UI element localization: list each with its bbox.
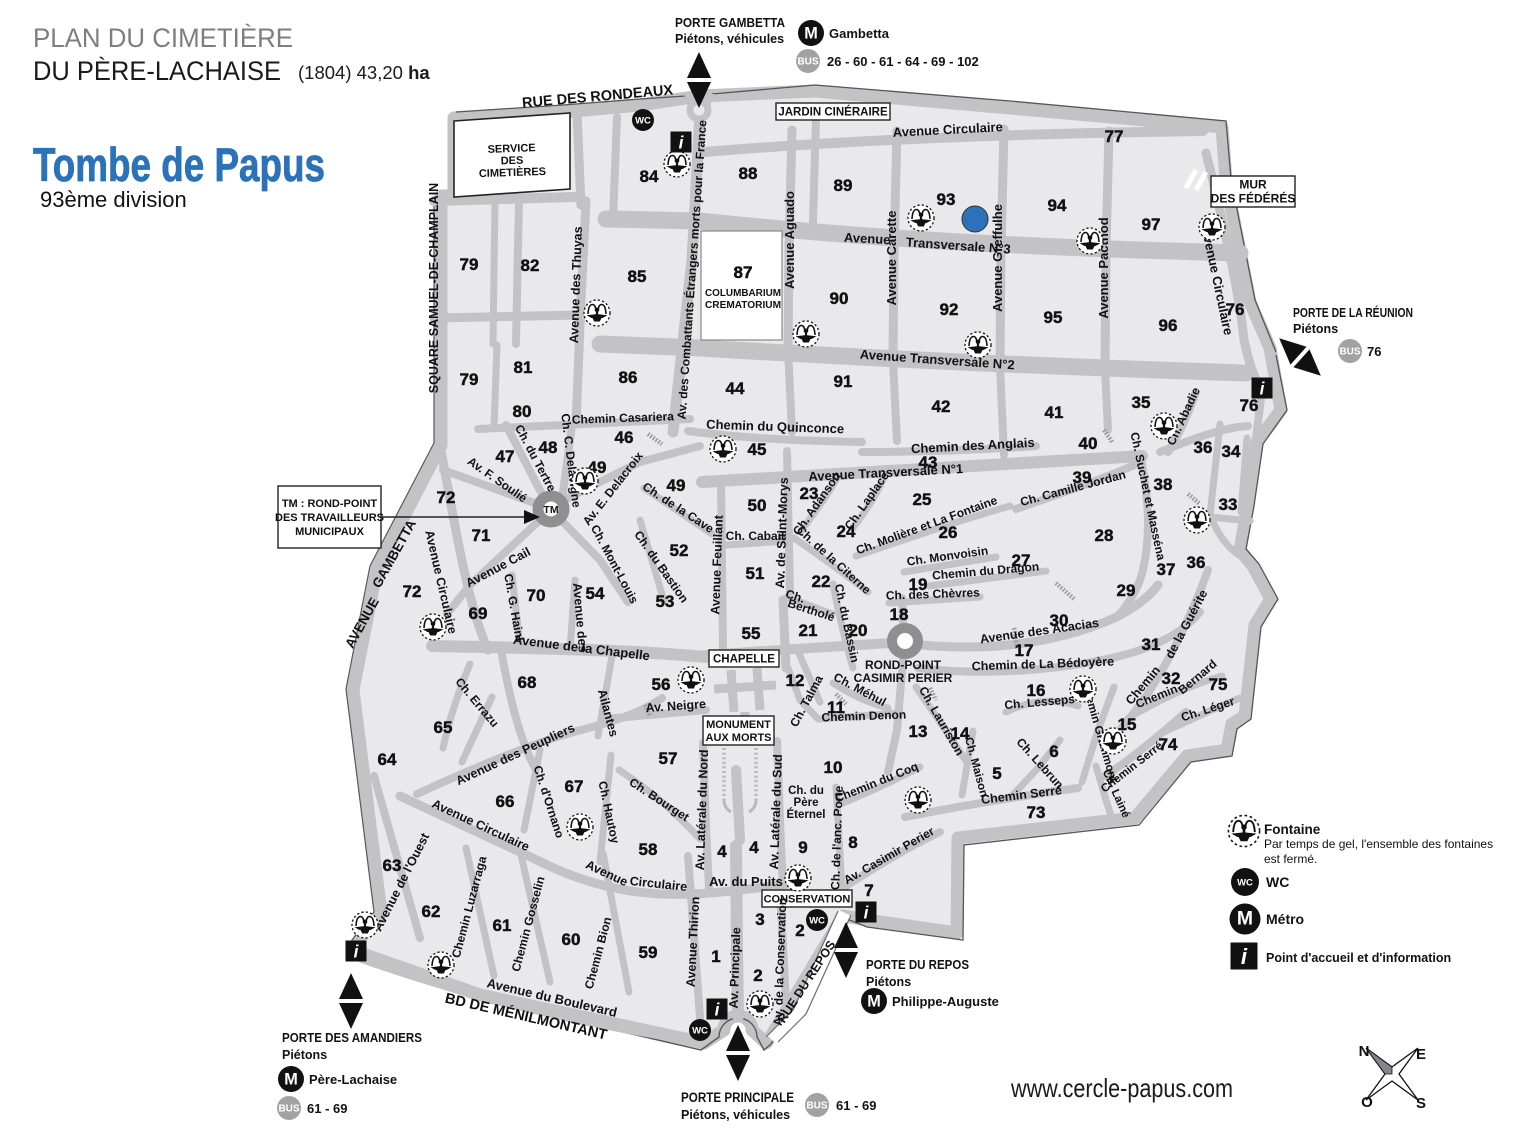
svg-text:76: 76	[1367, 344, 1381, 359]
svg-text:S: S	[1416, 1095, 1426, 1112]
svg-text:WC: WC	[692, 1026, 708, 1037]
svg-text:95: 95	[1044, 308, 1063, 327]
svg-text:51: 51	[746, 564, 765, 583]
svg-text:M: M	[1237, 908, 1253, 930]
svg-text:SERVICE: SERVICE	[487, 142, 535, 156]
svg-text:48: 48	[539, 438, 558, 457]
svg-text:88: 88	[739, 164, 758, 183]
svg-text:92: 92	[940, 300, 959, 319]
svg-text:CIMETIÈRES: CIMETIÈRES	[479, 165, 547, 180]
svg-text:90: 90	[830, 289, 849, 308]
svg-text:94: 94	[1048, 196, 1067, 215]
svg-text:Avenue Greffulhe: Avenue Greffulhe	[990, 204, 1005, 312]
svg-text:59: 59	[639, 943, 658, 962]
svg-text:Par temps de gel, l'ensemble d: Par temps de gel, l'ensemble des fontain…	[1264, 837, 1493, 851]
svg-text:16: 16	[1027, 681, 1046, 700]
svg-text:64: 64	[378, 750, 397, 769]
svg-text:Av. du Puits: Av. du Puits	[709, 874, 783, 889]
svg-text:34: 34	[1222, 442, 1241, 461]
svg-text:2: 2	[753, 966, 762, 985]
svg-text:8: 8	[848, 833, 857, 852]
svg-text:36: 36	[1194, 438, 1213, 457]
svg-text:3: 3	[755, 910, 764, 929]
svg-text:Piétons, véhicules: Piétons, véhicules	[681, 1108, 790, 1122]
svg-text:6: 6	[1049, 742, 1058, 761]
svg-text:M: M	[804, 25, 818, 43]
svg-text:Ch. du: Ch. du	[788, 785, 824, 797]
svg-text:4: 4	[717, 842, 727, 861]
svg-text:50: 50	[748, 496, 767, 515]
svg-text:E: E	[1416, 1046, 1426, 1063]
svg-text:23: 23	[800, 484, 819, 503]
svg-text:73: 73	[1027, 803, 1046, 822]
svg-text:11: 11	[827, 698, 845, 717]
svg-text:CHAPELLE: CHAPELLE	[713, 654, 775, 666]
svg-text:71: 71	[472, 526, 491, 545]
svg-text:est fermé.: est fermé.	[1264, 852, 1317, 866]
svg-text:31: 31	[1142, 635, 1161, 654]
svg-text:DES FÉDÉRÉS: DES FÉDÉRÉS	[1211, 191, 1296, 206]
svg-text:DU PÈRE-LACHAISE: DU PÈRE-LACHAISE	[33, 56, 281, 86]
svg-text:96: 96	[1159, 316, 1178, 335]
svg-text:80: 80	[513, 402, 532, 421]
svg-text:Tombe de Papus: Tombe de Papus	[33, 138, 325, 191]
svg-text:N: N	[1359, 1043, 1370, 1060]
svg-text:Fontaine: Fontaine	[1264, 822, 1321, 837]
svg-text:87: 87	[734, 263, 753, 282]
svg-text:PLAN DU CIMETIÈRE: PLAN DU CIMETIÈRE	[33, 23, 293, 53]
svg-text:19: 19	[909, 575, 928, 594]
svg-text:28: 28	[1095, 526, 1114, 545]
svg-text:M: M	[284, 1071, 298, 1089]
svg-text:18: 18	[890, 605, 909, 624]
svg-text:38: 38	[1154, 475, 1173, 494]
svg-text:Avenue Carette: Avenue Carette	[884, 211, 899, 306]
svg-text:46: 46	[615, 428, 634, 447]
svg-text:ROND-POINT: ROND-POINT	[865, 658, 942, 672]
svg-text:TM : ROND-POINT: TM : ROND-POINT	[282, 498, 378, 510]
svg-text:MUNICIPAUX: MUNICIPAUX	[295, 526, 365, 538]
svg-text:5: 5	[992, 764, 1001, 783]
svg-text:CREMATORIUM: CREMATORIUM	[705, 300, 781, 311]
svg-text:WC: WC	[1266, 874, 1289, 890]
svg-text:MONUMENT: MONUMENT	[706, 719, 771, 731]
svg-text:60: 60	[562, 930, 581, 949]
svg-text:SQUARE SAMUEL-DE-CHAMPLAIN: SQUARE SAMUEL-DE-CHAMPLAIN	[427, 183, 441, 393]
svg-text:53: 53	[656, 592, 675, 611]
svg-text:Av. Principale: Av. Principale	[727, 927, 744, 1009]
svg-text:DES: DES	[501, 155, 524, 168]
svg-text:82: 82	[521, 256, 540, 275]
svg-text:13: 13	[909, 722, 928, 741]
svg-text:70: 70	[527, 586, 546, 605]
svg-text:20: 20	[849, 621, 868, 640]
svg-text:43: 43	[919, 453, 938, 472]
svg-text:26: 26	[939, 523, 958, 542]
svg-text:62: 62	[422, 902, 441, 921]
svg-text:61 - 69: 61 - 69	[836, 1098, 876, 1113]
svg-text:41: 41	[1045, 403, 1064, 422]
svg-text:PORTE PRINCIPALE: PORTE PRINCIPALE	[681, 1090, 794, 1105]
svg-text:44: 44	[726, 379, 745, 398]
svg-text:Piétons: Piétons	[282, 1048, 327, 1062]
svg-text:10: 10	[824, 758, 843, 777]
svg-text:75: 75	[1209, 675, 1228, 694]
svg-text:69: 69	[469, 604, 488, 623]
svg-text:PORTE DES AMANDIERS: PORTE DES AMANDIERS	[282, 1031, 422, 1045]
svg-text:77: 77	[1105, 127, 1124, 146]
svg-text:www.cercle-papus.com: www.cercle-papus.com	[1010, 1073, 1233, 1103]
svg-text:26 - 60 - 61 - 64 - 69 - 102: 26 - 60 - 61 - 64 - 69 - 102	[827, 54, 979, 69]
svg-text:Piétons: Piétons	[866, 975, 911, 989]
svg-text:BUS: BUS	[1339, 347, 1360, 358]
svg-text:CASIMIR PERIER: CASIMIR PERIER	[854, 671, 953, 685]
svg-text:36: 36	[1187, 553, 1206, 572]
svg-text:Piétons: Piétons	[1293, 322, 1338, 336]
svg-text:MUR: MUR	[1239, 178, 1267, 192]
svg-text:Gambetta: Gambetta	[829, 26, 890, 41]
svg-text:17: 17	[1015, 641, 1034, 660]
svg-text:72: 72	[403, 582, 422, 601]
svg-text:81: 81	[514, 358, 533, 377]
svg-text:79: 79	[460, 370, 479, 389]
svg-text:63: 63	[383, 856, 402, 875]
svg-text:47: 47	[496, 447, 515, 466]
svg-text:37: 37	[1157, 560, 1176, 579]
svg-text:Père-Lachaise: Père-Lachaise	[309, 1072, 397, 1087]
svg-text:Avenue Aguado: Avenue Aguado	[782, 191, 797, 289]
svg-text:58: 58	[639, 840, 658, 859]
svg-text:76: 76	[1240, 396, 1259, 415]
svg-text:79: 79	[460, 255, 479, 274]
svg-text:49: 49	[667, 476, 686, 495]
svg-text:57: 57	[659, 749, 678, 768]
svg-text:72: 72	[437, 488, 456, 507]
svg-text:61: 61	[493, 916, 512, 935]
svg-text:74: 74	[1159, 735, 1178, 754]
svg-text:Point d'accueil et d'informati: Point d'accueil et d'information	[1266, 951, 1451, 965]
svg-text:O: O	[1361, 1094, 1373, 1111]
svg-text:COLUMBARIUM: COLUMBARIUM	[705, 288, 781, 299]
svg-text:68: 68	[518, 673, 537, 692]
svg-text:BUS: BUS	[806, 1101, 827, 1112]
svg-text:BUS: BUS	[278, 1104, 299, 1115]
svg-text:1: 1	[711, 947, 720, 966]
svg-text:54: 54	[586, 584, 605, 603]
svg-text:76: 76	[1226, 300, 1245, 319]
svg-text:97: 97	[1142, 215, 1161, 234]
svg-text:2: 2	[795, 921, 804, 940]
svg-text:45: 45	[748, 440, 767, 459]
svg-text:67: 67	[565, 777, 584, 796]
svg-text:WC: WC	[809, 916, 825, 927]
svg-text:i: i	[1241, 944, 1248, 969]
svg-text:Philippe-Auguste: Philippe-Auguste	[892, 994, 999, 1009]
svg-text:PORTE DU REPOS: PORTE DU REPOS	[866, 958, 969, 972]
svg-text:25: 25	[913, 490, 932, 509]
svg-text:35: 35	[1132, 393, 1151, 412]
svg-text:29: 29	[1117, 581, 1136, 600]
svg-text:WC: WC	[635, 116, 651, 127]
svg-text:WC: WC	[1237, 878, 1253, 889]
svg-text:93: 93	[937, 190, 956, 209]
svg-text:33: 33	[1219, 495, 1238, 514]
svg-text:91: 91	[834, 372, 853, 391]
svg-text:85: 85	[628, 267, 647, 286]
svg-text:Éternel: Éternel	[787, 808, 826, 821]
svg-text:PORTE DE LA RÉUNION: PORTE DE LA RÉUNION	[1293, 305, 1413, 320]
svg-text:Métro: Métro	[1266, 911, 1304, 927]
svg-text:93ème division: 93ème division	[40, 187, 187, 212]
svg-text:89: 89	[834, 176, 853, 195]
svg-text:24: 24	[837, 522, 856, 541]
svg-text:55: 55	[742, 624, 761, 643]
svg-text:BUS: BUS	[797, 57, 818, 68]
svg-text:52: 52	[670, 541, 689, 560]
svg-text:7: 7	[864, 881, 873, 900]
svg-text:66: 66	[496, 792, 515, 811]
svg-text:21: 21	[799, 621, 818, 640]
svg-text:14: 14	[951, 724, 970, 743]
svg-text:12: 12	[786, 671, 805, 690]
svg-text:4: 4	[749, 838, 759, 857]
svg-text:TM: TM	[543, 504, 558, 516]
svg-text:32: 32	[1162, 669, 1181, 688]
svg-text:65: 65	[434, 718, 453, 737]
svg-text:DES TRAVAILLEURS: DES TRAVAILLEURS	[275, 512, 384, 524]
svg-text:PORTE GAMBETTA: PORTE GAMBETTA	[675, 16, 785, 30]
svg-text:9: 9	[798, 838, 807, 857]
svg-text:(1804) 43,20 ha: (1804) 43,20 ha	[298, 62, 430, 83]
svg-text:84: 84	[640, 167, 659, 186]
svg-text:39: 39	[1073, 468, 1092, 487]
svg-text:42: 42	[932, 397, 951, 416]
svg-text:30: 30	[1050, 611, 1069, 630]
svg-text:JARDIN CINÉRAIRE: JARDIN CINÉRAIRE	[778, 106, 888, 119]
svg-text:Père: Père	[794, 797, 819, 809]
svg-text:Piétons, véhicules: Piétons, véhicules	[675, 32, 784, 46]
svg-text:22: 22	[812, 572, 831, 591]
svg-text:56: 56	[652, 675, 671, 694]
svg-text:61 - 69: 61 - 69	[307, 1101, 347, 1116]
svg-text:86: 86	[619, 368, 638, 387]
svg-text:40: 40	[1079, 434, 1098, 453]
svg-text:AUX MORTS: AUX MORTS	[706, 732, 772, 744]
svg-text:27: 27	[1012, 551, 1031, 570]
svg-text:M: M	[867, 993, 881, 1011]
